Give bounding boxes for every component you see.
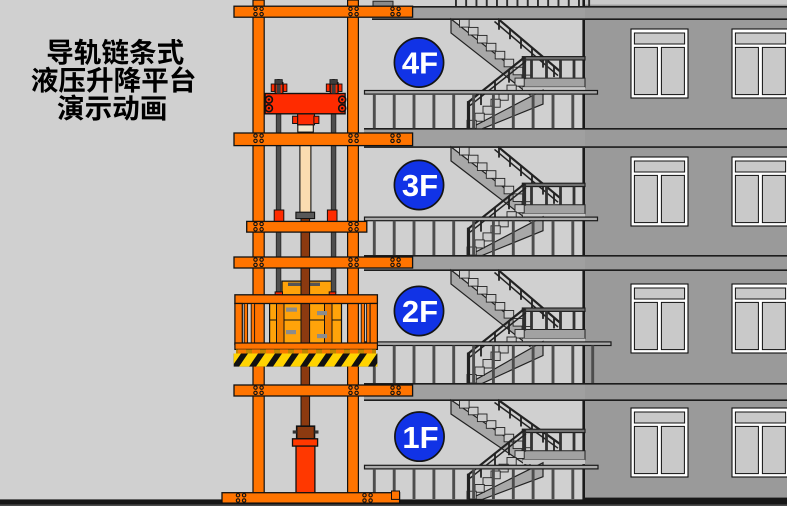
- svg-text:1F: 1F: [402, 420, 438, 455]
- svg-text:2F: 2F: [402, 294, 438, 329]
- svg-text:4F: 4F: [402, 46, 438, 81]
- svg-text:3F: 3F: [402, 168, 438, 203]
